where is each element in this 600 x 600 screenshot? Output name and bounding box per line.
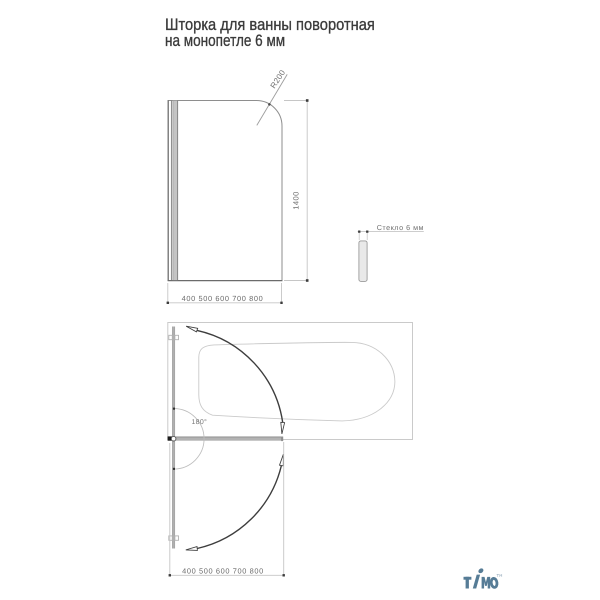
svg-text:Стекло 6 мм: Стекло 6 мм [377,223,424,232]
svg-text:400 500 600 700 800: 400 500 600 700 800 [182,566,264,575]
svg-text:180°: 180° [191,419,207,426]
svg-text:400 500 600 700 800: 400 500 600 700 800 [182,294,264,303]
svg-text:1400: 1400 [292,191,301,210]
